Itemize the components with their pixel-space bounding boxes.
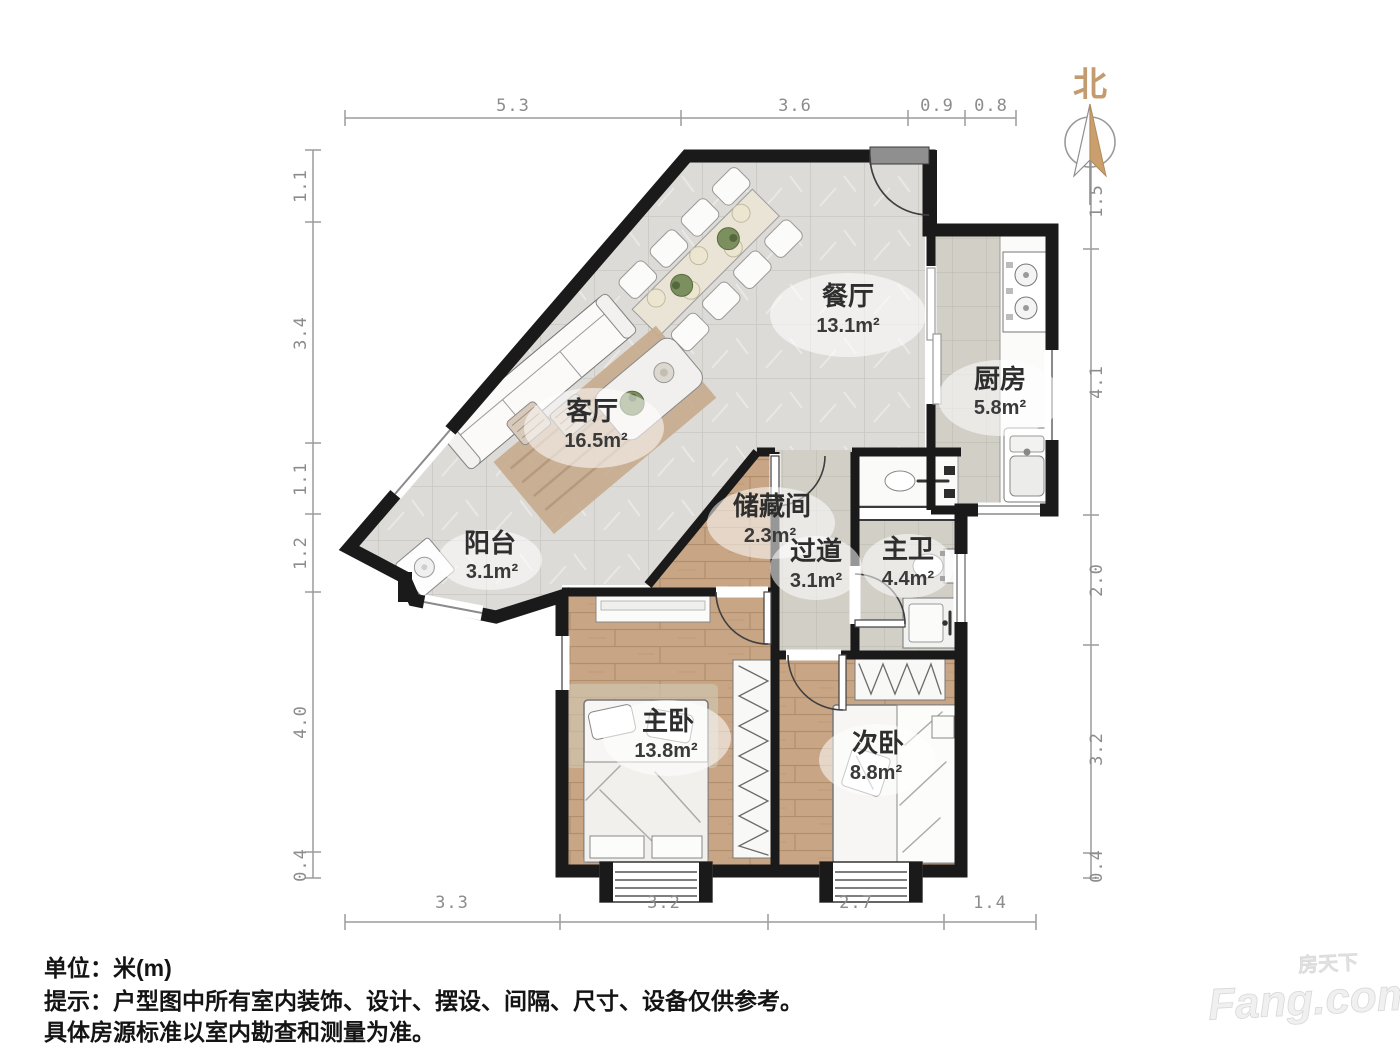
- shower-basin: [903, 598, 955, 648]
- dining-area: 13.1m²: [816, 315, 880, 337]
- dim-left-5: 4.0: [291, 705, 311, 739]
- kitchen-bottom-window: [978, 506, 1040, 514]
- dim-top-4: 0.8: [974, 96, 1008, 116]
- dim-bottom-4: 1.4: [973, 893, 1007, 913]
- balcony-label: 阳台: [464, 528, 516, 558]
- second-wardrobe: [855, 658, 945, 700]
- dim-top-3: 0.9: [920, 96, 954, 116]
- dim-left-2: 3.4: [291, 316, 311, 350]
- fang-watermark: 房天下 Fang.com: [1206, 947, 1400, 1030]
- balcony-area: 3.1m²: [466, 561, 519, 583]
- living-area: 16.5m²: [564, 430, 628, 452]
- master-bath-area: 4.4m²: [882, 568, 935, 590]
- bath-window: [957, 554, 965, 622]
- hallway-area: 3.1m²: [790, 570, 843, 592]
- floorplan-page: 餐厅 13.1m² 厨房 5.8m² 客厅 16.5m² 阳台 3.1m² 储藏…: [0, 0, 1400, 1047]
- kitchen-label: 厨房: [974, 364, 1026, 394]
- kitchen-area: 5.8m²: [974, 397, 1027, 419]
- storage-label: 储藏间: [733, 491, 811, 521]
- dim-left-4: 1.2: [291, 536, 311, 570]
- dim-left-1: 1.1: [291, 169, 311, 203]
- unit-note: 单位：米(m): [44, 955, 172, 981]
- dim-bottom-2: 3.2: [647, 893, 681, 913]
- hallway-label: 过道: [790, 536, 842, 566]
- footer-notes: 单位：米(m) 提示：户型图中所有室内装饰、设计、摆设、间隔、尺寸、设备仅供参考…: [44, 955, 803, 1045]
- master-bath-label: 主卫: [882, 534, 934, 564]
- north-label: 北: [1073, 66, 1107, 104]
- dim-right-4: 3.2: [1087, 732, 1107, 766]
- watermark-en: Fang.com: [1207, 970, 1400, 1030]
- master-bedroom-label: 主卧: [642, 706, 694, 736]
- storage-area: 2.3m²: [744, 525, 797, 547]
- disclaimer-line1: 提示：户型图中所有室内装饰、设计、摆设、间隔、尺寸、设备仅供参考。: [44, 988, 803, 1014]
- master-bedroom-area: 13.8m²: [634, 740, 698, 762]
- dim-left-3: 1.1: [291, 462, 311, 496]
- dim-bottom-1: 3.3: [435, 893, 469, 913]
- second-bedroom-label: 次卧: [852, 728, 904, 758]
- floor-plan: 餐厅 13.1m² 厨房 5.8m² 客厅 16.5m² 阳台 3.1m² 储藏…: [0, 0, 1400, 1047]
- dining-label: 餐厅: [822, 281, 874, 311]
- north-compass-icon: 北: [1065, 66, 1115, 205]
- disclaimer-line2: 具体房源标准以室内勘查和测量为准。: [44, 1019, 435, 1045]
- dim-right-3: 2.0: [1087, 563, 1107, 597]
- dim-bottom-3: 2.7: [839, 893, 873, 913]
- dim-top-1: 5.3: [496, 96, 530, 116]
- dim-right-2: 4.1: [1087, 365, 1107, 399]
- dim-top-2: 3.6: [778, 96, 812, 116]
- master-wardrobe: [733, 660, 773, 858]
- dim-right-5: 0.4: [1087, 849, 1107, 883]
- second-bedroom-area: 8.8m²: [850, 762, 903, 784]
- dim-left-6: 0.4: [291, 848, 311, 882]
- living-label: 客厅: [566, 396, 618, 426]
